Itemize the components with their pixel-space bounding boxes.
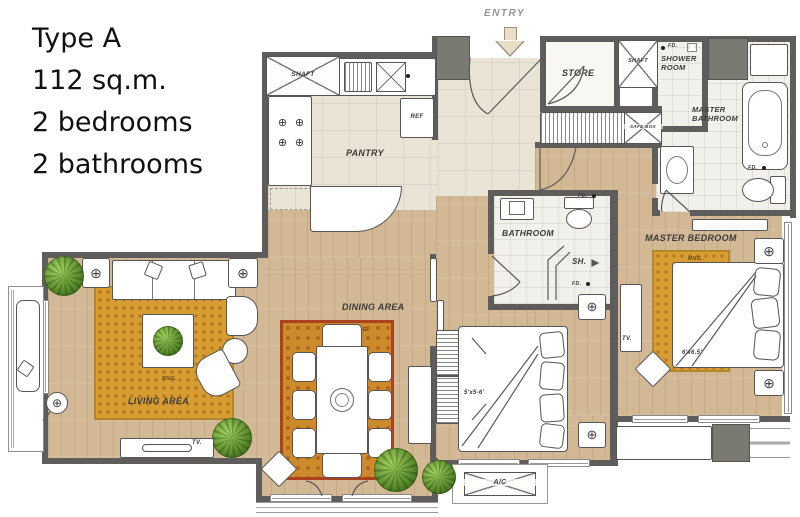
floor-lamp-living: ⊕: [46, 392, 68, 414]
lounge-daybed: [16, 300, 40, 392]
nightstand-master-bottom: ⊕: [754, 370, 784, 396]
plan-title: Type A 112 sq.m. 2 bedrooms 2 bathrooms: [32, 18, 203, 186]
window-bay-1: [270, 494, 332, 502]
armchair-1: [226, 296, 258, 336]
nightstand-master-top: ⊕: [754, 238, 784, 264]
upper-cabinet-dashed: [270, 188, 312, 210]
pillow-master-3: [753, 329, 782, 361]
entry-arrow-stem-icon: [504, 27, 517, 40]
plan-area: 112 sq.m.: [32, 60, 203, 102]
plant-coffee-table: [153, 326, 183, 356]
column-top-right: [708, 38, 748, 80]
pillow-bedroom2-4: [539, 423, 566, 450]
shaft-2: [618, 40, 658, 88]
lamp-icon: ⊕: [90, 265, 102, 282]
plant-living-corner: [44, 256, 84, 296]
toilet-bowl-master: [742, 178, 774, 202]
dining-chair-left-3: [292, 428, 316, 458]
lamp-icon: ⊕: [587, 427, 598, 443]
pillow-bedroom2-2: [539, 361, 565, 391]
railing-dining-bay: [256, 502, 438, 513]
balcony-left-railing: [11, 290, 14, 448]
wall-east-upper: [790, 36, 796, 218]
fd-masterbath-label: FD.: [748, 165, 757, 171]
pillow-master-1: [753, 267, 782, 298]
tv-living-label: TV.: [192, 440, 202, 446]
tv-living: [142, 444, 192, 452]
dining-chair-left-1: [292, 352, 316, 382]
plan-type: Type A: [32, 18, 203, 60]
dining-chair-right-1: [368, 352, 392, 382]
store-label: STORE: [562, 68, 594, 78]
window-master-east: [784, 222, 792, 414]
dining-centerpiece-inner: [335, 393, 349, 407]
burner-icon: ⊕: [278, 116, 287, 129]
fd-bathroom2-bottom-label: FD.: [572, 281, 581, 287]
fd-dot-bathroom2-bottom: [586, 282, 590, 286]
kitchen-sink: [376, 62, 406, 92]
dining-chair-right-2: [368, 390, 392, 420]
toilet-bowl-bathroom2: [566, 209, 592, 229]
sliding-door-panel-1: [430, 258, 437, 302]
dining-chair-bottom: [322, 452, 362, 478]
refrigerator-label: REF: [400, 114, 434, 120]
planter-ledge-master: [616, 426, 712, 460]
bathtub-drain-icon: [762, 142, 768, 148]
lamp-icon: ⊕: [52, 396, 62, 410]
column-bottom-right: [712, 424, 750, 462]
pillow-master-2: [750, 296, 780, 329]
vanity-basin-master: [666, 156, 688, 184]
fd-bathroom2-top-label: FD.: [578, 193, 587, 199]
safe-box-label: SAFE BOX: [623, 124, 663, 129]
basin-bathroom2: [509, 201, 525, 215]
plant-living-bottom: [212, 418, 252, 458]
faucet-icon: [406, 74, 410, 78]
shower-sh-label: SH.: [572, 257, 586, 266]
dining-area-label: DINING AREA: [342, 302, 404, 312]
wall-bathroom-north: [488, 190, 618, 196]
plan-bedrooms: 2 bedrooms: [32, 102, 203, 144]
master-bed-size-label: 6'x6.5': [682, 350, 702, 356]
column-entry: [436, 36, 470, 80]
fd-dot-shower: [661, 46, 665, 50]
bench-master: [692, 219, 768, 231]
nightstand-bedroom2-bottom: ⊕: [578, 422, 606, 448]
window-master-2: [698, 415, 760, 423]
window-bay-2: [342, 494, 412, 502]
nightstand-bedroom2-top: ⊕: [578, 294, 606, 320]
side-table-sofa-right: ⊕: [228, 258, 258, 288]
wall-masterbath-south-stub: [652, 210, 660, 216]
shower-room-label: SHOWER ROOM: [661, 55, 705, 72]
entry-label: ENTRY: [484, 8, 525, 19]
pantry-label: PANTRY: [346, 148, 384, 158]
entry-arrow-icon: [497, 41, 523, 55]
lamp-icon: ⊕: [237, 265, 249, 282]
floor-plan: Type A 112 sq.m. 2 bedrooms 2 bathrooms …: [0, 0, 800, 517]
plant-bay: [374, 448, 418, 492]
shaft-2-label: SHAFT: [620, 58, 656, 64]
fd-dot-masterbath: [762, 166, 766, 170]
bathroom-label: BATHROOM: [502, 228, 554, 238]
lamp-icon: ⊕: [763, 243, 775, 260]
burner-icon: ⊕: [295, 136, 304, 149]
wall-bathroom-west-stub: [488, 296, 494, 310]
wall-top-right: [540, 36, 796, 42]
ac-label: A/C: [464, 479, 536, 486]
dish-rack: [344, 62, 372, 92]
fd-dot-bathroom2-top: [592, 194, 596, 198]
master-bedroom-label: MASTER BEDROOM: [645, 233, 737, 243]
wall-bathroom-west: [488, 190, 494, 254]
burner-icon: ⊕: [295, 116, 304, 129]
lamp-icon: ⊕: [763, 375, 775, 392]
ceiling-light-icon: [688, 44, 696, 51]
pillow-bedroom2-3: [539, 393, 565, 423]
plant-ac-ledge: [422, 460, 456, 494]
wall-living-south: [42, 458, 260, 464]
fd-shower-label: FD.: [668, 43, 677, 49]
living-area-label: LIVING AREA: [128, 396, 189, 406]
wall-masterbath-south: [690, 210, 796, 216]
shaft-kitchen-label: SHAFT: [272, 71, 334, 78]
pillow-bedroom2-1: [539, 331, 566, 359]
plan-bathrooms: 2 bathrooms: [32, 144, 203, 186]
wall-store-west: [540, 36, 546, 112]
burner-icon: ⊕: [278, 136, 287, 149]
tv-master-label: TV.: [622, 336, 632, 342]
stove-burners-icon: ⊕⊕⊕⊕: [274, 112, 308, 152]
bathroom-cabinet-top: [750, 44, 788, 76]
wall-bedroom-divider: [610, 190, 618, 466]
lamp-icon: ⊕: [587, 299, 598, 315]
living-rug-label: RNG.: [162, 376, 177, 382]
dining-chair-left-2: [292, 390, 316, 420]
side-table-sofa-left: ⊕: [82, 258, 110, 288]
sideboard-dining: [408, 366, 432, 444]
railing-bottom-right: [750, 428, 790, 458]
window-master-1: [632, 415, 688, 423]
sofa: [112, 260, 236, 300]
bed2-size-label: 5'x5-6': [464, 390, 484, 396]
